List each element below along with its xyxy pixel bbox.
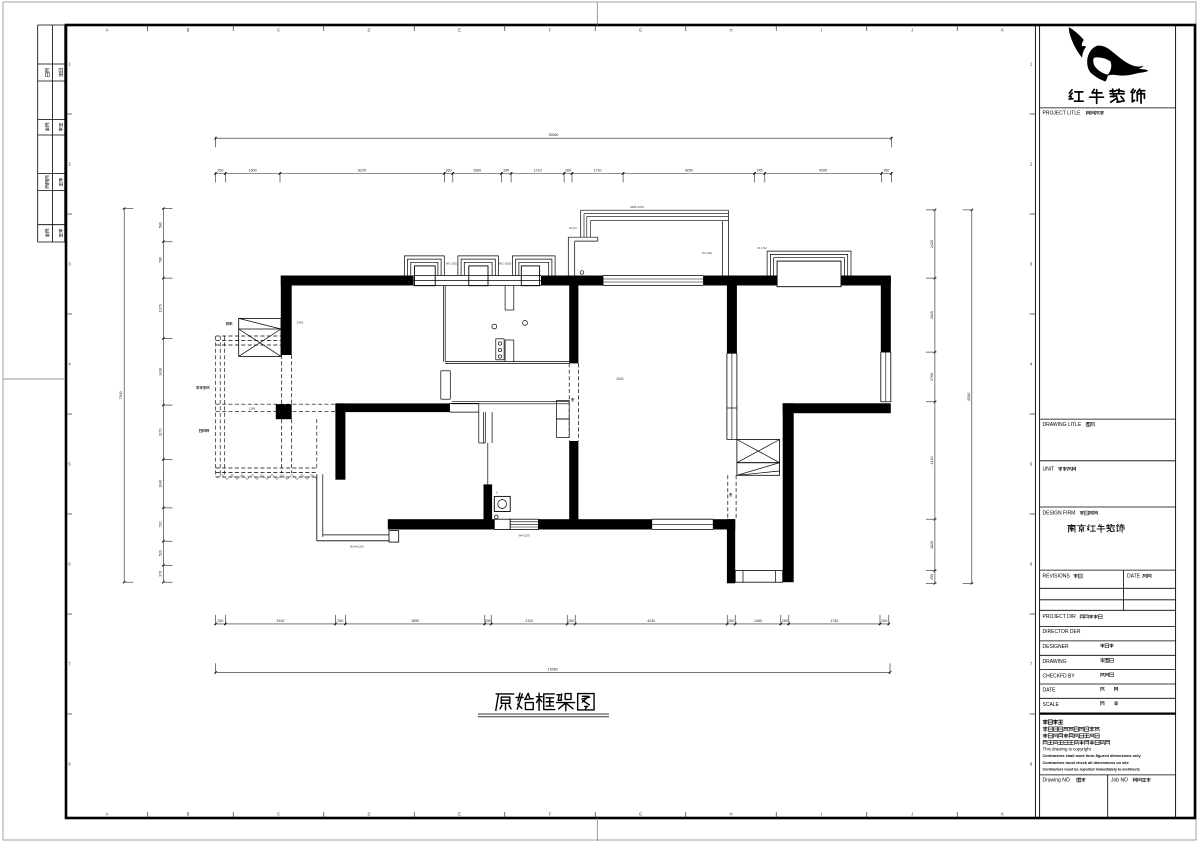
svg-text:MC-1518: MC-1518 <box>499 262 512 266</box>
svg-text:Contractors must be reported i: Contractors must be reported immediately… <box>1043 768 1140 772</box>
svg-text:520: 520 <box>159 550 163 556</box>
svg-text:4200: 4200 <box>819 169 827 173</box>
svg-text:15060: 15060 <box>548 133 558 137</box>
svg-text:1430: 1430 <box>159 368 163 376</box>
svg-text:F: F <box>549 812 552 817</box>
svg-text:E: E <box>458 28 461 33</box>
svg-text:K: K <box>1001 812 1004 817</box>
svg-text:K: K <box>1001 28 1004 33</box>
svg-text:REVISIONS: REVISIONS <box>1043 574 1071 580</box>
svg-text:2420: 2420 <box>930 240 934 248</box>
svg-text:W 1.5H: W 1.5H <box>757 246 766 250</box>
svg-text:1500: 1500 <box>249 169 257 173</box>
svg-text:Job NO: Job NO <box>1111 778 1128 784</box>
svg-text:W=1100: W=1100 <box>518 534 529 538</box>
svg-text:8280: 8280 <box>967 393 971 401</box>
svg-text:3040: 3040 <box>616 377 623 381</box>
svg-text:D: D <box>367 812 370 817</box>
svg-text:Contractors must check all dim: Contractors must check all dimensions on… <box>1043 760 1130 765</box>
svg-text:4140: 4140 <box>930 457 934 465</box>
svg-text:Drawing NO: Drawing NO <box>1043 778 1070 784</box>
svg-text:370: 370 <box>159 571 163 577</box>
svg-text:580: 580 <box>159 222 163 228</box>
svg-text:F: F <box>549 28 552 33</box>
svg-text:DESIGN FIRM: DESIGN FIRM <box>1043 511 1076 517</box>
svg-text:Contractors shall work form-fi: Contractors shall work form-figured dime… <box>1043 753 1142 758</box>
svg-text:A: A <box>106 28 109 33</box>
svg-text:1760: 1760 <box>930 373 934 381</box>
svg-text:C: C <box>277 812 280 817</box>
svg-text:450: 450 <box>930 574 934 580</box>
svg-text:This drawing is copyright: This drawing is copyright <box>1043 747 1092 752</box>
svg-text:1260: 1260 <box>754 619 762 623</box>
svg-text:1379: 1379 <box>159 304 163 312</box>
svg-text:D: D <box>367 28 370 33</box>
svg-text:1560: 1560 <box>473 169 481 173</box>
svg-text:1850: 1850 <box>411 619 419 623</box>
svg-text:B: B <box>187 28 190 33</box>
svg-text:2110: 2110 <box>525 619 533 623</box>
svg-text:G: G <box>639 28 642 33</box>
svg-text:J: J <box>911 28 913 33</box>
svg-text:1820: 1820 <box>930 541 934 549</box>
svg-text:CHECKFD BY: CHECKFD BY <box>1043 673 1076 679</box>
svg-text:260: 260 <box>565 169 571 173</box>
svg-text:780: 780 <box>159 257 163 263</box>
svg-text:245: 245 <box>757 169 763 173</box>
svg-text:260: 260 <box>883 169 889 173</box>
svg-text:260: 260 <box>782 619 788 623</box>
svg-text:1040: 1040 <box>159 480 163 488</box>
svg-text:PROJECT LITLE: PROJECT LITLE <box>1043 111 1082 117</box>
svg-text:C: C <box>277 28 280 33</box>
svg-text:1740: 1740 <box>830 619 838 623</box>
svg-text:250: 250 <box>217 169 223 173</box>
svg-text:BxH=L200: BxH=L200 <box>350 545 364 549</box>
svg-text:250: 250 <box>485 619 491 623</box>
svg-text:2360: 2360 <box>297 321 304 325</box>
svg-text:1710: 1710 <box>594 169 602 173</box>
svg-text:15060: 15060 <box>548 667 558 671</box>
svg-text:A: A <box>106 812 109 817</box>
svg-text:260: 260 <box>881 619 887 623</box>
svg-text:720: 720 <box>159 522 163 528</box>
svg-text:W p(X: W p(X <box>569 226 577 230</box>
svg-text:MC-1515: MC-1515 <box>446 262 459 266</box>
svg-text:DRAWING: DRAWING <box>1043 659 1067 665</box>
svg-text:G: G <box>639 812 642 817</box>
svg-text:H: H <box>729 812 732 817</box>
svg-text:260: 260 <box>503 169 509 173</box>
svg-text:6225: 6225 <box>358 169 366 173</box>
svg-text:SCALE: SCALE <box>1043 702 1060 708</box>
svg-text:H: H <box>729 28 732 33</box>
svg-text:E: E <box>458 812 461 817</box>
svg-text:DATE: DATE <box>1043 688 1057 694</box>
svg-text:UNIT: UNIT <box>1043 467 1055 473</box>
svg-text:3480 1(W): 3480 1(W) <box>630 205 644 209</box>
svg-text:DESIGNER: DESIGNER <box>1043 644 1070 650</box>
svg-text:260: 260 <box>728 619 734 623</box>
svg-text:TR 1/2H: TR 1/2H <box>702 251 712 255</box>
svg-text:7930: 7930 <box>119 391 123 399</box>
svg-text:260: 260 <box>337 619 343 623</box>
svg-text:4230: 4230 <box>647 619 655 623</box>
svg-text:1710: 1710 <box>534 169 542 173</box>
svg-text:I: I <box>821 812 822 817</box>
svg-text:260: 260 <box>446 169 452 173</box>
svg-text:1910: 1910 <box>276 619 284 623</box>
svg-text:260: 260 <box>568 619 574 623</box>
svg-text:4250: 4250 <box>685 169 693 173</box>
svg-text:J: J <box>911 812 913 817</box>
svg-text:DRAWING LITLE: DRAWING LITLE <box>1043 422 1082 428</box>
svg-text:1195: 1195 <box>249 407 256 411</box>
svg-text:DIRECTOR DER: DIRECTOR DER <box>1043 629 1081 635</box>
svg-text:B: B <box>187 812 190 817</box>
svg-text:I: I <box>821 28 822 33</box>
svg-text:2620: 2620 <box>930 311 934 319</box>
svg-text:DATE: DATE <box>1127 574 1141 580</box>
svg-text:PROJECT DIR: PROJECT DIR <box>1043 614 1077 620</box>
svg-text:250: 250 <box>217 619 223 623</box>
svg-text:1170: 1170 <box>159 428 163 436</box>
